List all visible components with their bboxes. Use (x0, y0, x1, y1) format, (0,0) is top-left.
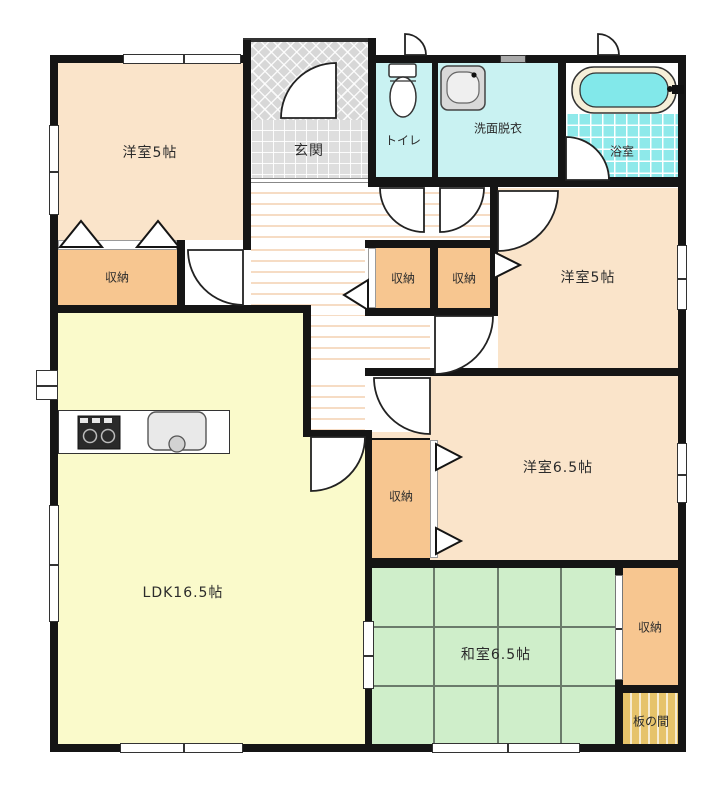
stove-icon (78, 416, 120, 449)
room-label: トイレ (385, 132, 421, 149)
room-label: 収納 (391, 270, 415, 287)
room-label: 浴室 (610, 143, 634, 160)
closet-c-bifold-icon (436, 444, 461, 470)
room-label: 収納 (389, 488, 413, 505)
room-label: 洋室5帖 (123, 142, 178, 162)
closet-a-bifold-icon (137, 221, 179, 247)
washroom-door-arc (440, 188, 484, 232)
toilet-icon (389, 64, 416, 117)
room-label: 玄関 (294, 140, 324, 160)
closet-h2-bifold-icon (494, 252, 520, 278)
room-label: 洋室5帖 (561, 267, 616, 287)
bathroom-door-arc (566, 137, 609, 180)
kitchen-sink-icon (148, 412, 206, 452)
room-label: 洋室6.5帖 (523, 457, 593, 477)
bathtub-icon (572, 67, 684, 113)
toilet-vent-arc (405, 34, 426, 55)
room-label: 収納 (105, 269, 129, 286)
closet-c-bifold-icon (436, 528, 461, 554)
room-label: 板の間 (633, 713, 669, 730)
room-label: LDK16.5帖 (143, 582, 224, 602)
floor-plan: 洋室5帖 玄関 トイレ 洗面脱衣 浴室 収納 収納 収納 洋室5帖 洋室6.5帖… (0, 0, 710, 790)
room-label: 和室6.5帖 (461, 644, 531, 664)
symbol-overlay (0, 0, 710, 790)
ldk-door-arc (311, 437, 365, 491)
closet-h1-bifold-icon (344, 280, 368, 310)
room-5b-door-arc (498, 191, 558, 251)
room-label: 収納 (452, 270, 476, 287)
room-65-door-arc (374, 378, 430, 434)
bath-vent-arc (598, 34, 619, 55)
hall-door-arc (435, 316, 493, 374)
sink-icon (441, 66, 485, 110)
front-door-arc (281, 63, 336, 118)
closet-a-bifold-icon (60, 221, 102, 247)
room-5a-door-arc (188, 250, 243, 305)
room-label: 収納 (638, 619, 662, 636)
toilet-door-arc (380, 188, 424, 232)
room-label: 洗面脱衣 (474, 120, 522, 137)
